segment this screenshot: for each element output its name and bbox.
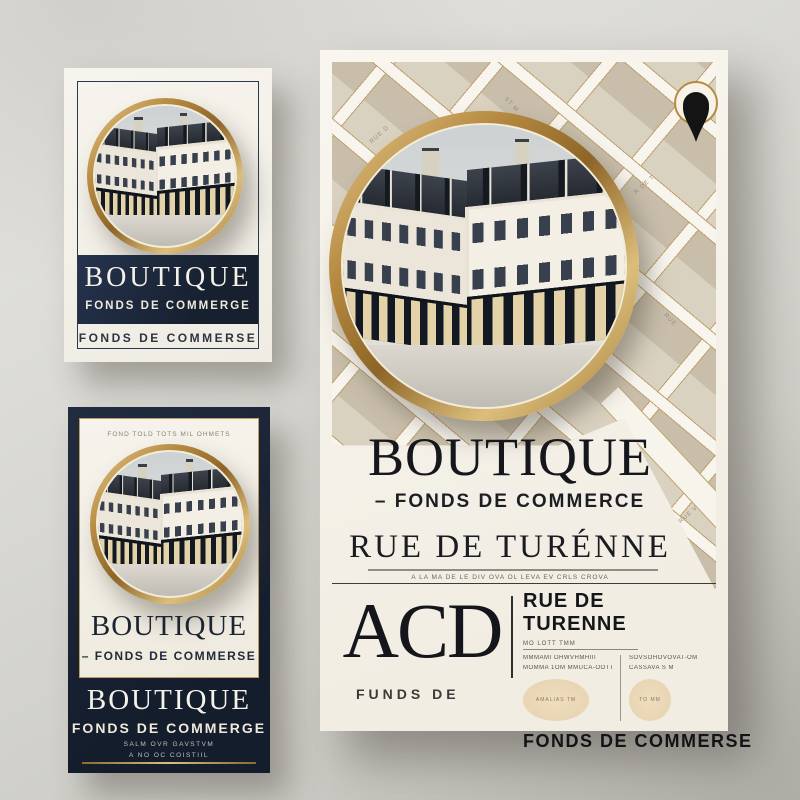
band-subtitle: FONDS DE COMMERGE <box>68 720 270 736</box>
panel-microlabel: MO LOTT TMM <box>523 641 638 650</box>
flyer-subtitle: – FONDS DE COMMERSE <box>68 649 270 663</box>
band-microtext: A NO OC COISTIIL <box>68 752 270 759</box>
flyer-band-subtitle: FONDS DE COMMERGE <box>78 300 258 312</box>
poster-street-title: RUE DE TURÉNNE <box>332 529 688 566</box>
gold-photo-ring <box>90 444 250 604</box>
section-divider-rule <box>332 583 716 584</box>
gold-photo-ring <box>87 98 243 254</box>
panel-fine-print: SOVSOHOVOVAT-OM <box>629 655 703 661</box>
panel-column-left: MMMAMI OHWVHMHIII MOMMA 1OM MMUCA-OOTT A… <box>523 655 620 721</box>
photo-street-ground <box>93 215 237 248</box>
building-photo <box>93 104 237 248</box>
flyer-caption: FONDS DE COMMERSE <box>64 331 272 345</box>
flyer-white-small: BOUTIQUE FONDS DE COMMERGE FONDS DE COMM… <box>64 68 272 362</box>
panel-fine-print: CASSAVA S M <box>629 665 703 671</box>
poster-title: BOUTIQUE <box>332 426 688 488</box>
panel-fine-print: MMMAMI OHWVHMHIII <box>523 655 614 661</box>
flyer-header-microtext: FOND TOLD TOTS MIL OHMETS <box>68 431 270 438</box>
building-photo <box>96 450 244 598</box>
band-title: BOUTIQUE <box>68 684 270 717</box>
panel-columns: MMMAMI OHWVHMHIII MOMMA 1OM MMUCA-OOTT A… <box>523 655 709 721</box>
brand-caption: FUNDS DE <box>356 686 460 702</box>
building-photo <box>341 123 627 409</box>
gold-photo-ring <box>329 111 639 421</box>
poster-large: RUE D ST M R DE T RUE R. T RUE V <box>320 50 728 731</box>
navy-title-band: BOUTIQUE FONDS DE COMMERGE <box>78 255 258 324</box>
panel-column-right: SOVSOHOVOVAT-OM CASSAVA S M TO MM <box>620 655 709 721</box>
flyer-title: BOUTIQUE <box>68 610 270 643</box>
panel-footer: FONDS DE COMMERSE <box>523 731 709 752</box>
wall-background: BOUTIQUE FONDS DE COMMERGE FONDS DE COMM… <box>0 0 800 800</box>
photo-street-ground <box>96 564 244 598</box>
stamp-seal: AMALIAS TM <box>523 679 589 721</box>
map-street-label: ST M <box>503 96 520 113</box>
vertical-divider-rule <box>511 596 513 678</box>
gold-rule <box>82 762 256 764</box>
brand-monogram: ACD <box>334 586 510 676</box>
panel-fine-print: MOMMA 1OM MMUCA-OOTT <box>523 665 614 671</box>
flyer-navy-small: FOND TOLD TOTS MIL OHMETS BOUTIQUE – FON… <box>68 407 270 773</box>
band-microtext: SALM OVR GAVSTVM <box>68 741 270 748</box>
poster-subtitle: – FONDS DE COMMERCE <box>332 491 688 513</box>
map-street-label: R DE T <box>633 174 656 196</box>
poster-street-microtext: A LA MA DE LE DIV OVA OL LEVA EV CRLS CR… <box>332 574 688 581</box>
photo-street-ground <box>341 345 627 409</box>
flyer-title: BOUTIQUE <box>78 262 258 294</box>
stamp-seal: TO MM <box>629 679 671 721</box>
street-underline-rule <box>368 569 658 571</box>
map-street-label: RUE <box>662 312 677 328</box>
location-pin-icon <box>672 78 720 150</box>
panel-header: RUE DE TURENNE <box>523 590 709 636</box>
details-panel: RUE DE TURENNE MO LOTT TMM MMMAMI OHWVHM… <box>523 590 709 752</box>
